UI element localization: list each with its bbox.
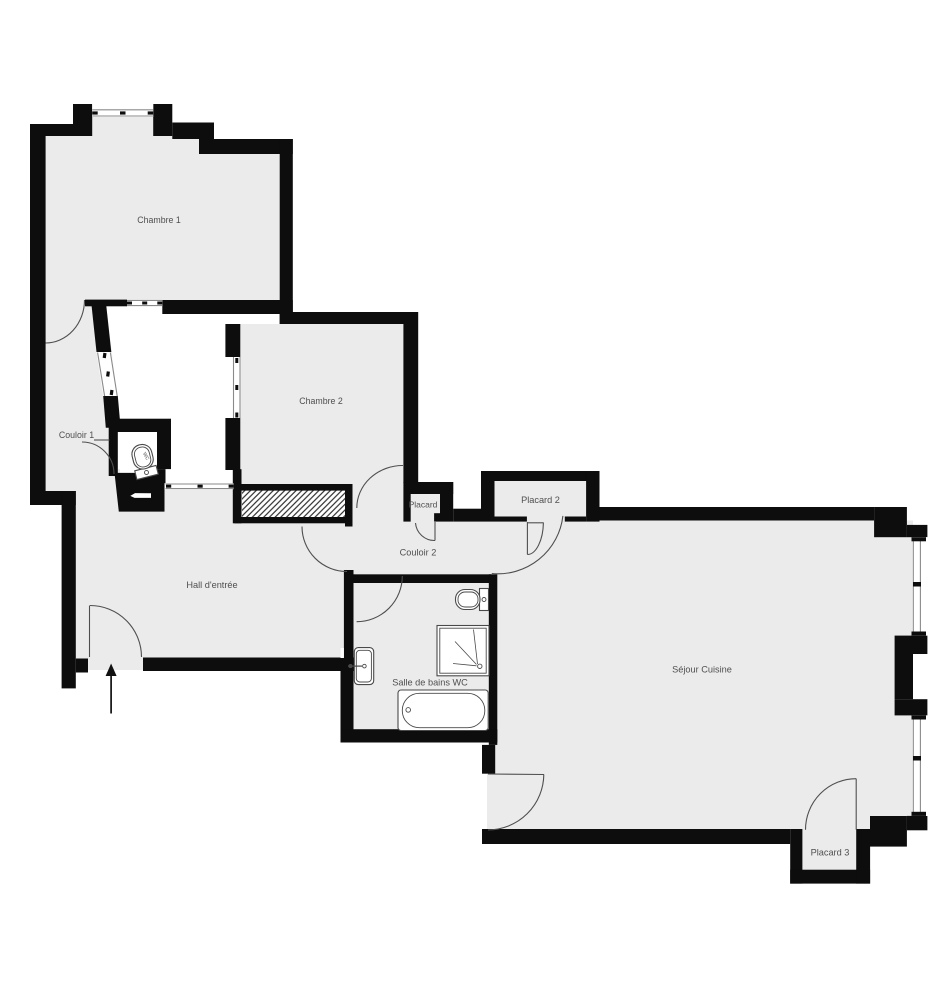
svg-text:Couloir 1: Couloir 1 (59, 430, 94, 440)
svg-text:Hall d'entrée: Hall d'entrée (186, 580, 237, 590)
svg-text:Salle de bains WC: Salle de bains WC (392, 678, 468, 688)
svg-text:Couloir 2: Couloir 2 (400, 548, 437, 558)
svg-text:Chambre 2: Chambre 2 (299, 396, 343, 406)
svg-text:Séjour Cuisine: Séjour Cuisine (672, 665, 732, 675)
svg-text:Placard 2: Placard 2 (521, 495, 560, 505)
svg-text:Placard 3: Placard 3 (811, 848, 850, 858)
svg-text:Placard: Placard (409, 500, 438, 510)
svg-text:Chambre 1: Chambre 1 (137, 215, 181, 225)
